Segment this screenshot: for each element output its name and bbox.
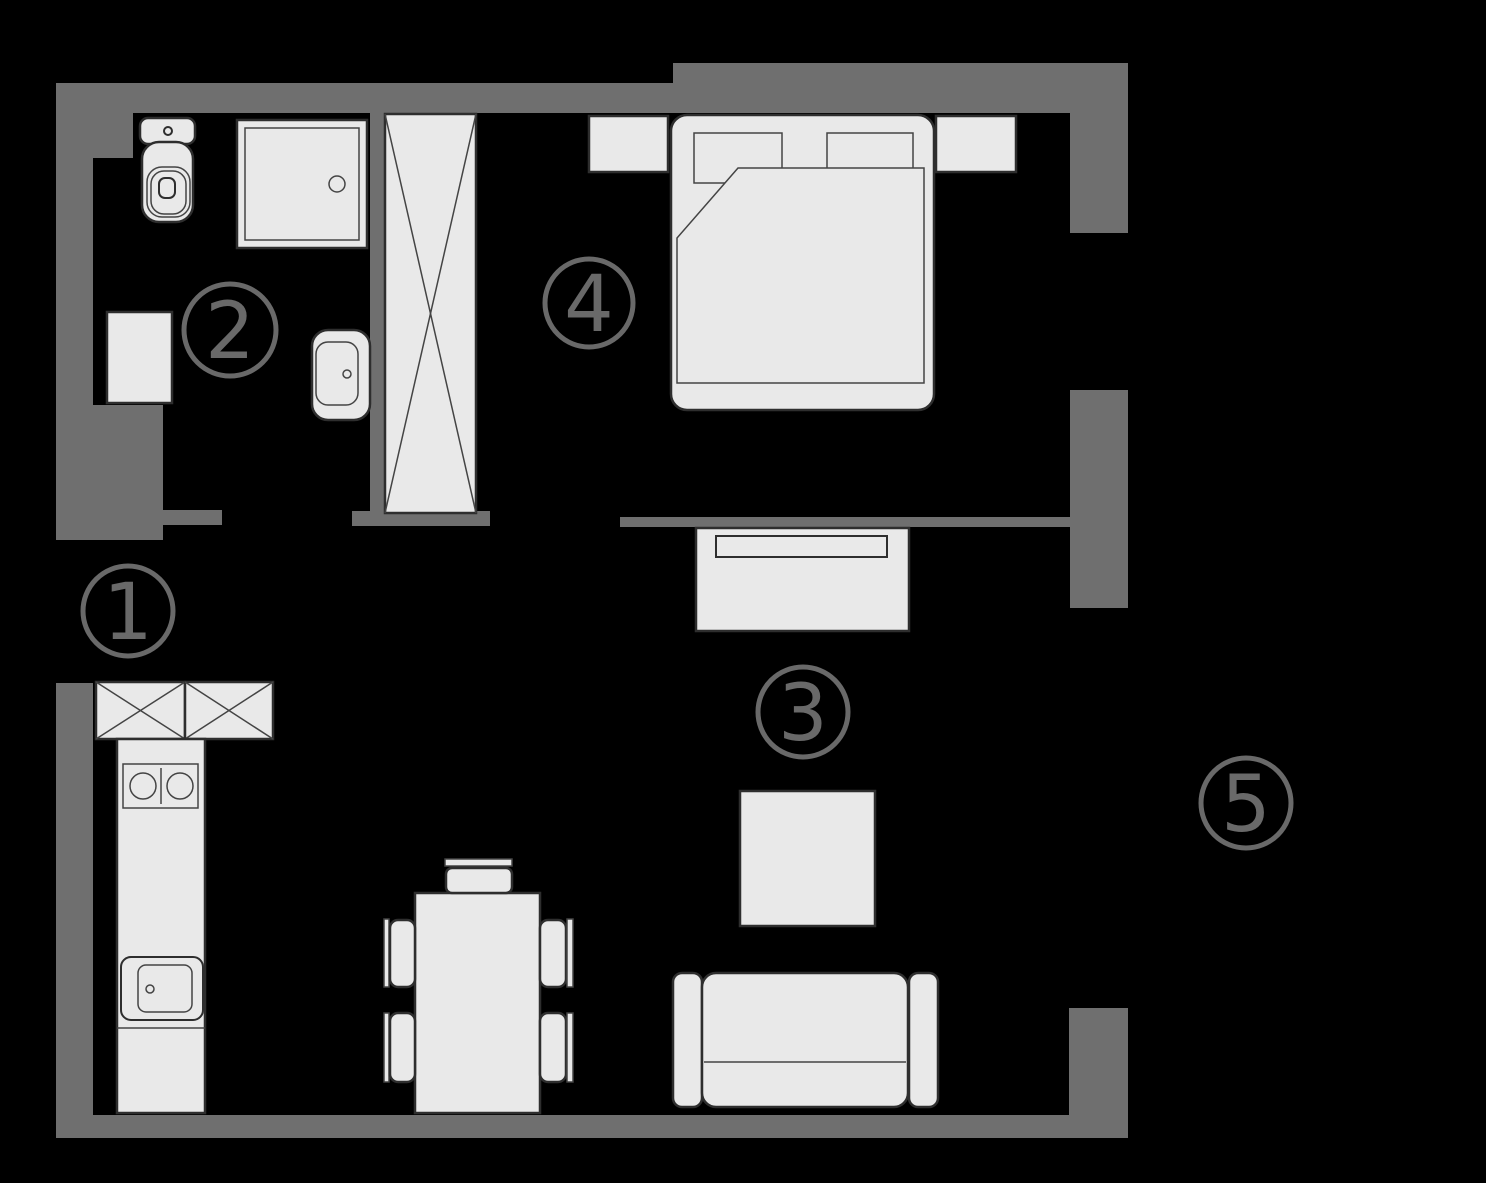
dining-chair-top-seat	[446, 868, 512, 893]
dining-chair-right2-back	[567, 1013, 573, 1082]
wall-bathroom-right	[370, 113, 384, 525]
wall-left-lower	[56, 683, 93, 1138]
wall-right-middle	[1070, 390, 1128, 608]
dining-chair-right1-seat	[540, 920, 566, 987]
washing-machine	[107, 312, 172, 403]
floor-plan-svg: 12345	[0, 0, 1486, 1183]
wall-bottom	[56, 1115, 1128, 1138]
wall-left-niche-block	[93, 405, 163, 540]
coffee-table	[740, 791, 875, 926]
tv	[716, 536, 887, 557]
shower-tray	[237, 120, 367, 248]
nightstand-left	[589, 116, 668, 172]
sofa-armrest-right	[909, 973, 938, 1107]
wall-right-upper	[1070, 113, 1128, 233]
wall-bath-door-ledge	[163, 510, 222, 525]
sofa-body	[702, 973, 908, 1107]
wall-bedroom-living-partition	[620, 517, 1070, 527]
dining-chair-left1-back	[384, 919, 389, 987]
sofa-armrest-left	[673, 973, 702, 1107]
floor-plan: 12345	[0, 0, 1486, 1183]
dining-table	[415, 893, 540, 1113]
room-living-room-number: 3	[778, 669, 828, 759]
dining-chair-left2-back	[384, 1013, 389, 1082]
room-balcony-number: 5	[1221, 760, 1271, 850]
room-hallway-number: 1	[103, 568, 153, 658]
room-bedroom-number: 4	[564, 260, 614, 350]
wall-top-right	[673, 63, 1128, 113]
blanket	[677, 168, 924, 383]
nightstand-right	[936, 116, 1016, 172]
dining-chair-left1-seat	[390, 920, 415, 987]
room-bathroom-number: 2	[205, 287, 255, 377]
bathroom-sink	[312, 330, 370, 420]
wall-left-corner-block	[56, 83, 133, 158]
dining-chair-right1-back	[567, 919, 573, 987]
dining-chair-top-back	[445, 859, 512, 866]
wall-top-left	[56, 83, 690, 113]
dining-chair-right2-seat	[540, 1013, 566, 1082]
dining-chair-left2-seat	[390, 1013, 415, 1082]
toilet-tank	[140, 118, 195, 144]
